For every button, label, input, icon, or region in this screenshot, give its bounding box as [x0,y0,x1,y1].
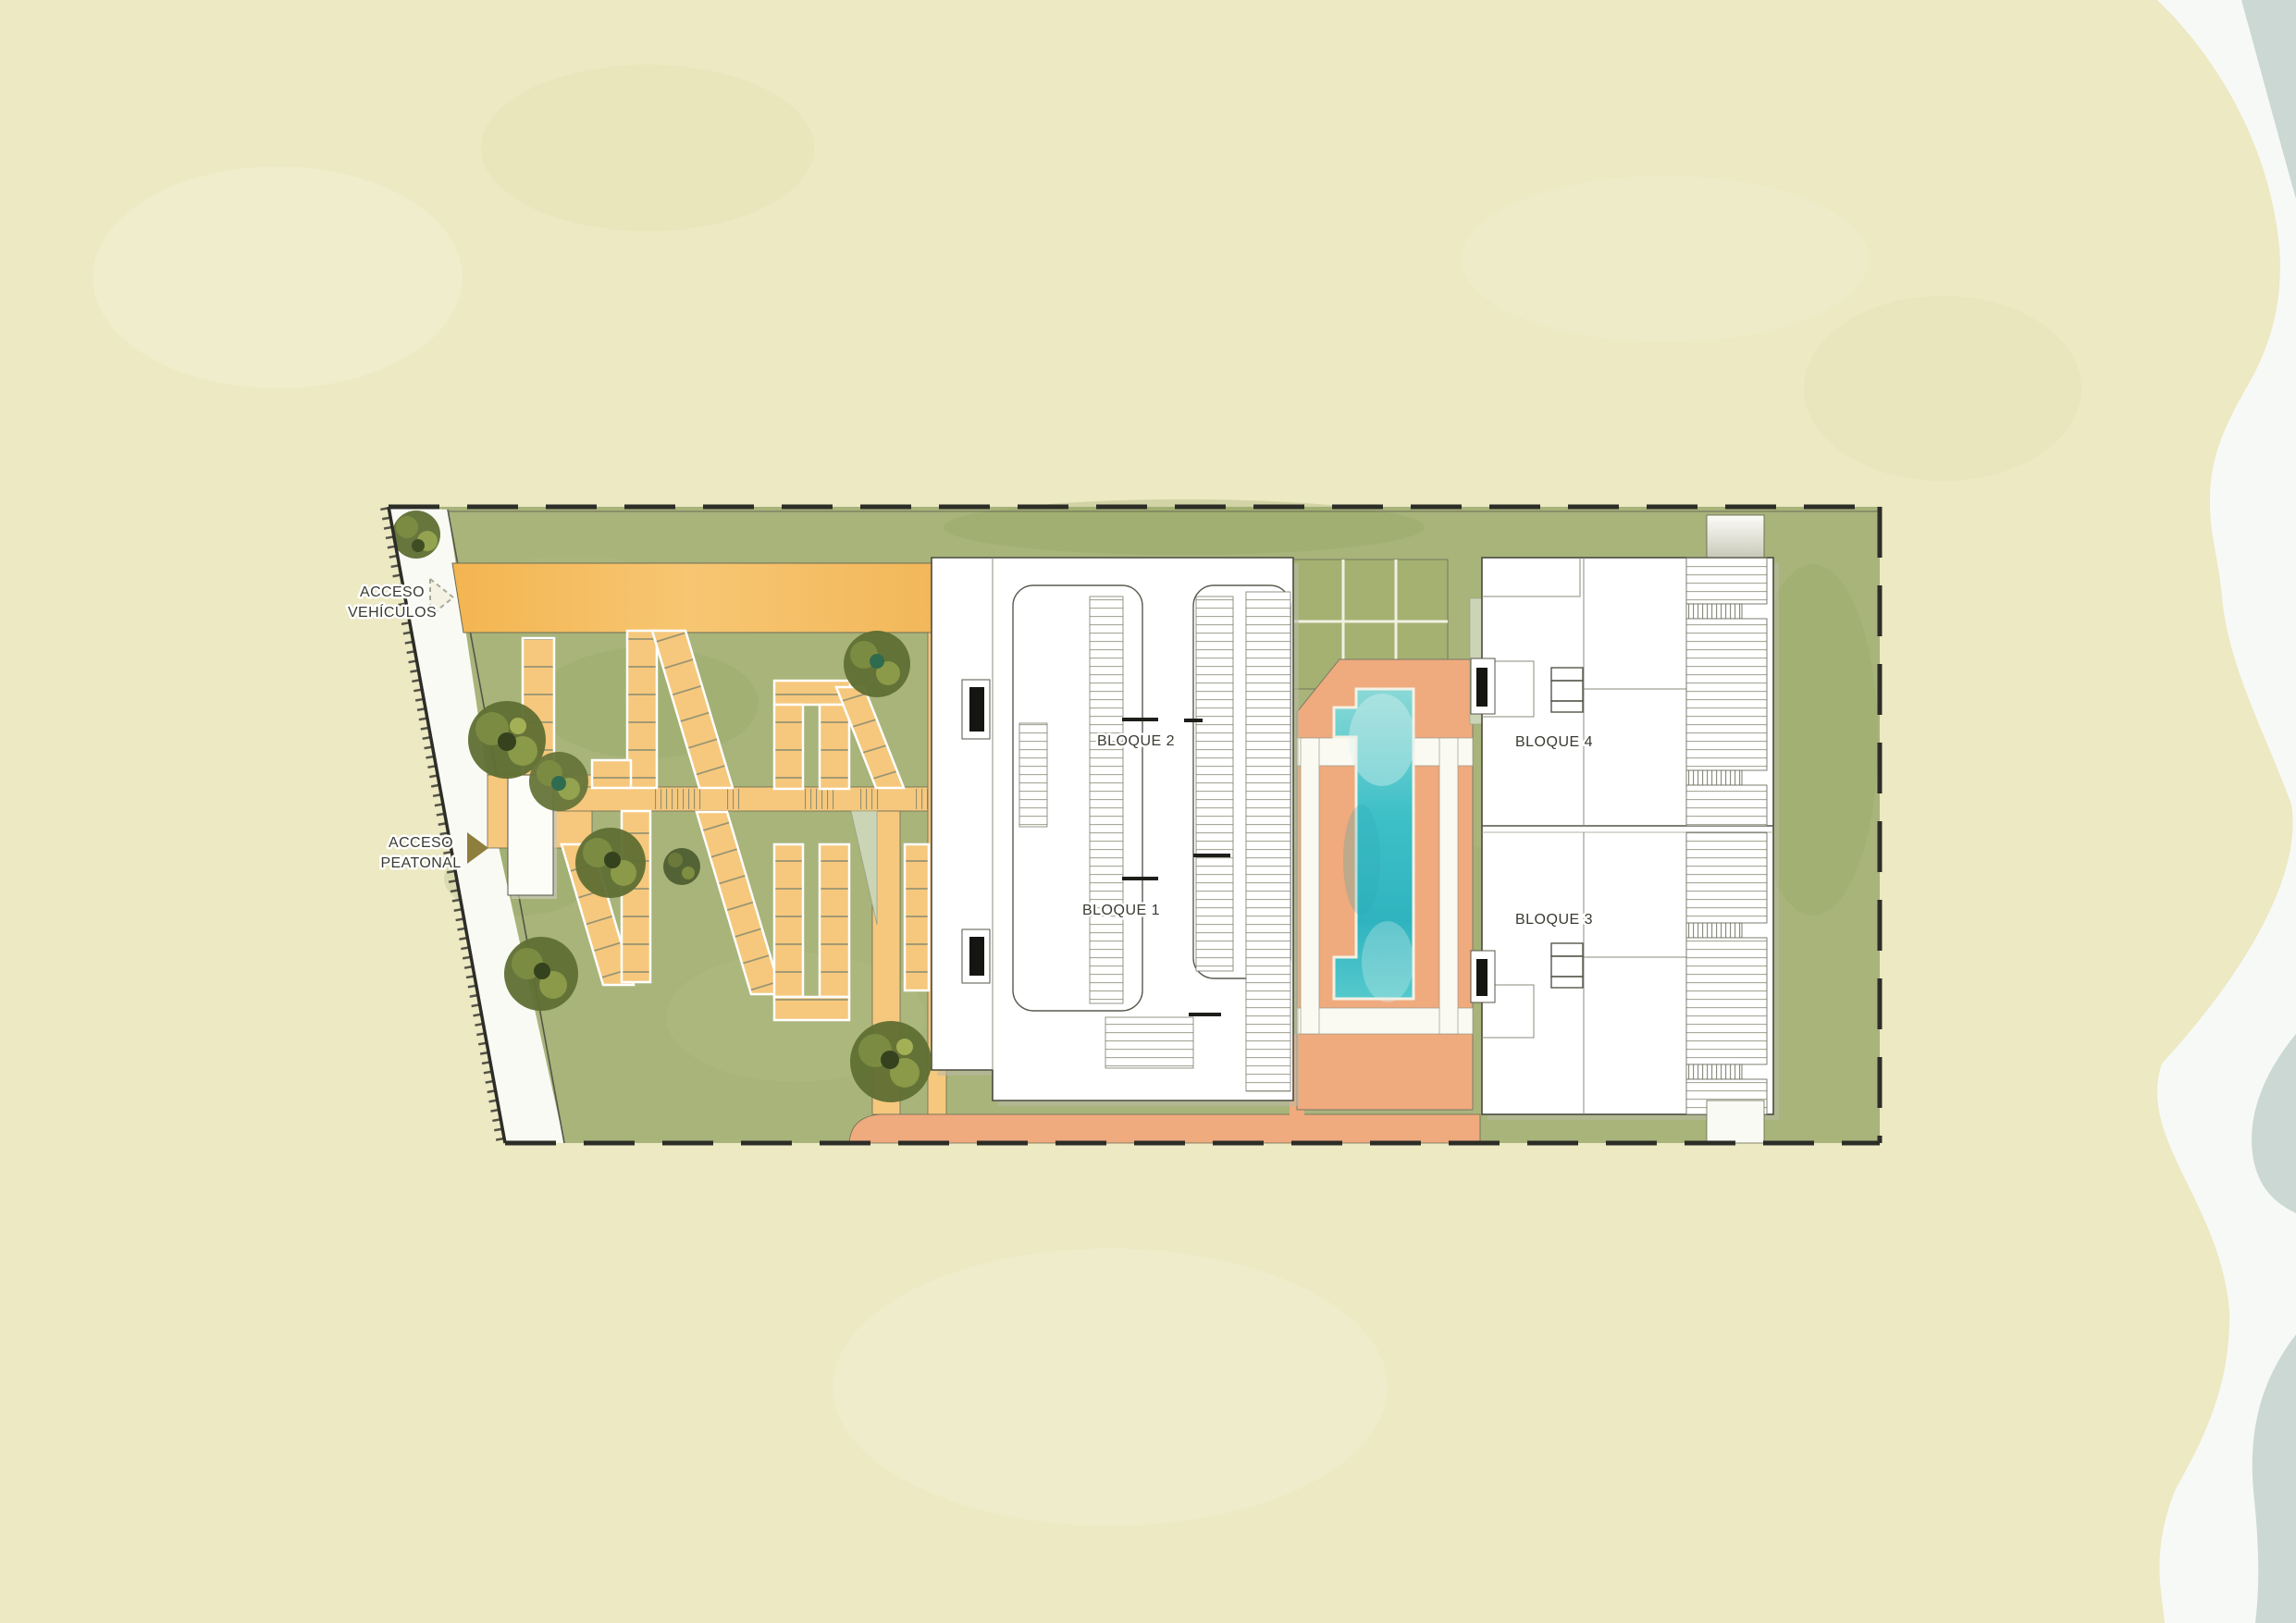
tree-icon [850,1021,932,1102]
pool-highlight [1349,694,1415,786]
stair-run [1686,604,1742,619]
deck-walkway-east [1439,738,1458,1034]
balcony-zone [1686,558,1767,1114]
label-acceso-vehiculos-line2: VEHÍCULOS [348,603,437,621]
stair-run [1686,1064,1742,1079]
label-bloque-3: BLOQUE 3 [1515,912,1593,928]
entry-bar [969,937,984,976]
entry-bar [969,687,984,732]
block-3-4-building [1471,515,1779,1120]
entry-bar [1476,959,1487,996]
vehicle-road [452,563,932,633]
south-promenade [849,1114,1480,1143]
parking-row [905,844,929,990]
north-access-strip [1707,515,1764,558]
deck-walkway-west [1301,738,1319,1034]
stair-run [1686,923,1742,938]
parking-row [820,705,849,789]
tree-icon [504,937,578,1011]
pool-highlight [1362,921,1413,1002]
stair-run [1686,770,1742,785]
crosswalk-marks [803,789,834,809]
tree-icon [663,848,700,885]
parking-row [774,997,849,1020]
south-access-strip [1707,1100,1764,1143]
tree-icon [844,631,910,697]
tree-icon [392,510,440,559]
crosswalk-marks [860,789,879,809]
label-bloque-2: BLOQUE 2 [1097,733,1175,749]
label-bloque-4: BLOQUE 4 [1515,734,1593,750]
terrace-strip [1090,596,1123,1003]
parking-row [774,705,803,789]
entry-bar [1476,668,1487,707]
block-1-2-building [932,558,1299,1106]
terrace-strip [1105,1017,1193,1068]
site-plan-drawing: ACCESO VEHÍCULOS ACCESO PEATONAL BLOQUE … [0,0,2296,1623]
crosswalk-marks [653,789,701,809]
crosswalk-marks [914,789,929,809]
parking-row [592,760,631,788]
parking-row [820,844,849,997]
crosswalk-marks [723,789,742,809]
label-acceso-peatonal-line2: PEATONAL [380,855,461,871]
site-plan-canvas: ACCESO VEHÍCULOS ACCESO PEATONAL BLOQUE … [0,0,2296,1623]
tree-icon [575,828,646,898]
label-bloque-1: BLOQUE 1 [1082,903,1160,918]
parking-row [774,844,803,997]
pool-shade [1343,805,1380,916]
tree-icon [529,752,588,811]
label-acceso-peatonal-line1: ACCESO [389,835,453,851]
label-acceso-vehiculos-line1: ACCESO [360,584,425,600]
terrace-strip [1019,723,1047,827]
terrace-strip [1246,592,1290,1091]
terrace-strip [1196,596,1233,971]
